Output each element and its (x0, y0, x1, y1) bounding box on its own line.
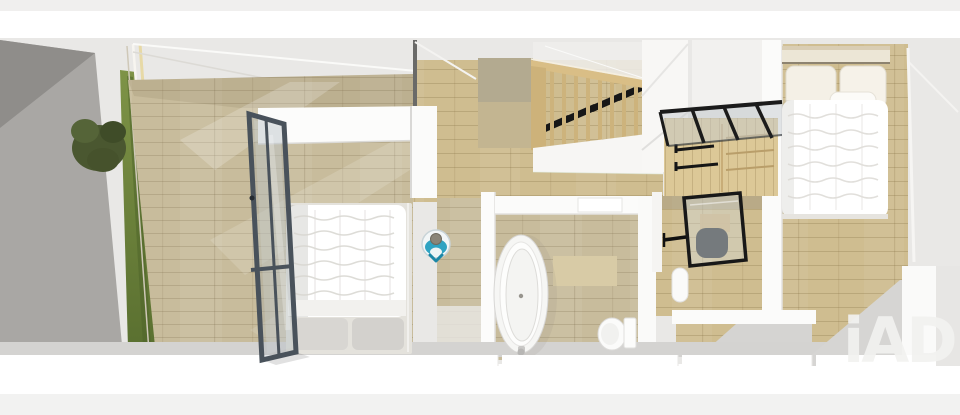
person-head-icon (431, 234, 442, 245)
bath-mat (553, 256, 617, 286)
closet (660, 102, 792, 196)
headboard (782, 50, 890, 64)
front-wall (0, 355, 936, 367)
toilet-seat (601, 323, 619, 345)
right-duvet (782, 100, 888, 218)
floor-plan-canvas: iAD (0, 0, 960, 415)
pillow-right (352, 318, 404, 350)
front-wall-segment-1 (0, 355, 498, 367)
front-wall-segment-2 (502, 355, 678, 367)
sheet-fold (288, 300, 406, 316)
pedestal-basin (672, 268, 688, 302)
iad-watermark-logo: iAD (843, 304, 955, 377)
bottom-margin (0, 366, 960, 415)
stair-stringer (531, 66, 546, 152)
upper-landing-shadow (478, 58, 533, 102)
tub-drain (519, 294, 523, 298)
tub-faucet (518, 349, 525, 356)
office-wall-sliver (652, 192, 662, 272)
wall-top-highlight (692, 40, 762, 106)
master-east-wall (411, 106, 437, 198)
pillow-left (294, 318, 348, 350)
plan-base-shadow-band (0, 342, 936, 357)
bathroom-west-wall (481, 192, 495, 368)
vanity (578, 198, 622, 212)
front-wall-segment-3 (682, 355, 812, 367)
master-bed (286, 203, 412, 354)
bottom-fade-strip (0, 394, 960, 415)
door-handle (250, 196, 255, 201)
floor-plan-render: iAD (0, 0, 960, 415)
right-duvet-shadow (782, 100, 794, 218)
toilet-tank (624, 318, 636, 348)
bathroom-north-wall (495, 196, 655, 214)
glass-partition (684, 193, 746, 266)
top-strip (0, 0, 960, 11)
bed-end-shadow (782, 214, 888, 219)
railing-post (413, 40, 417, 108)
